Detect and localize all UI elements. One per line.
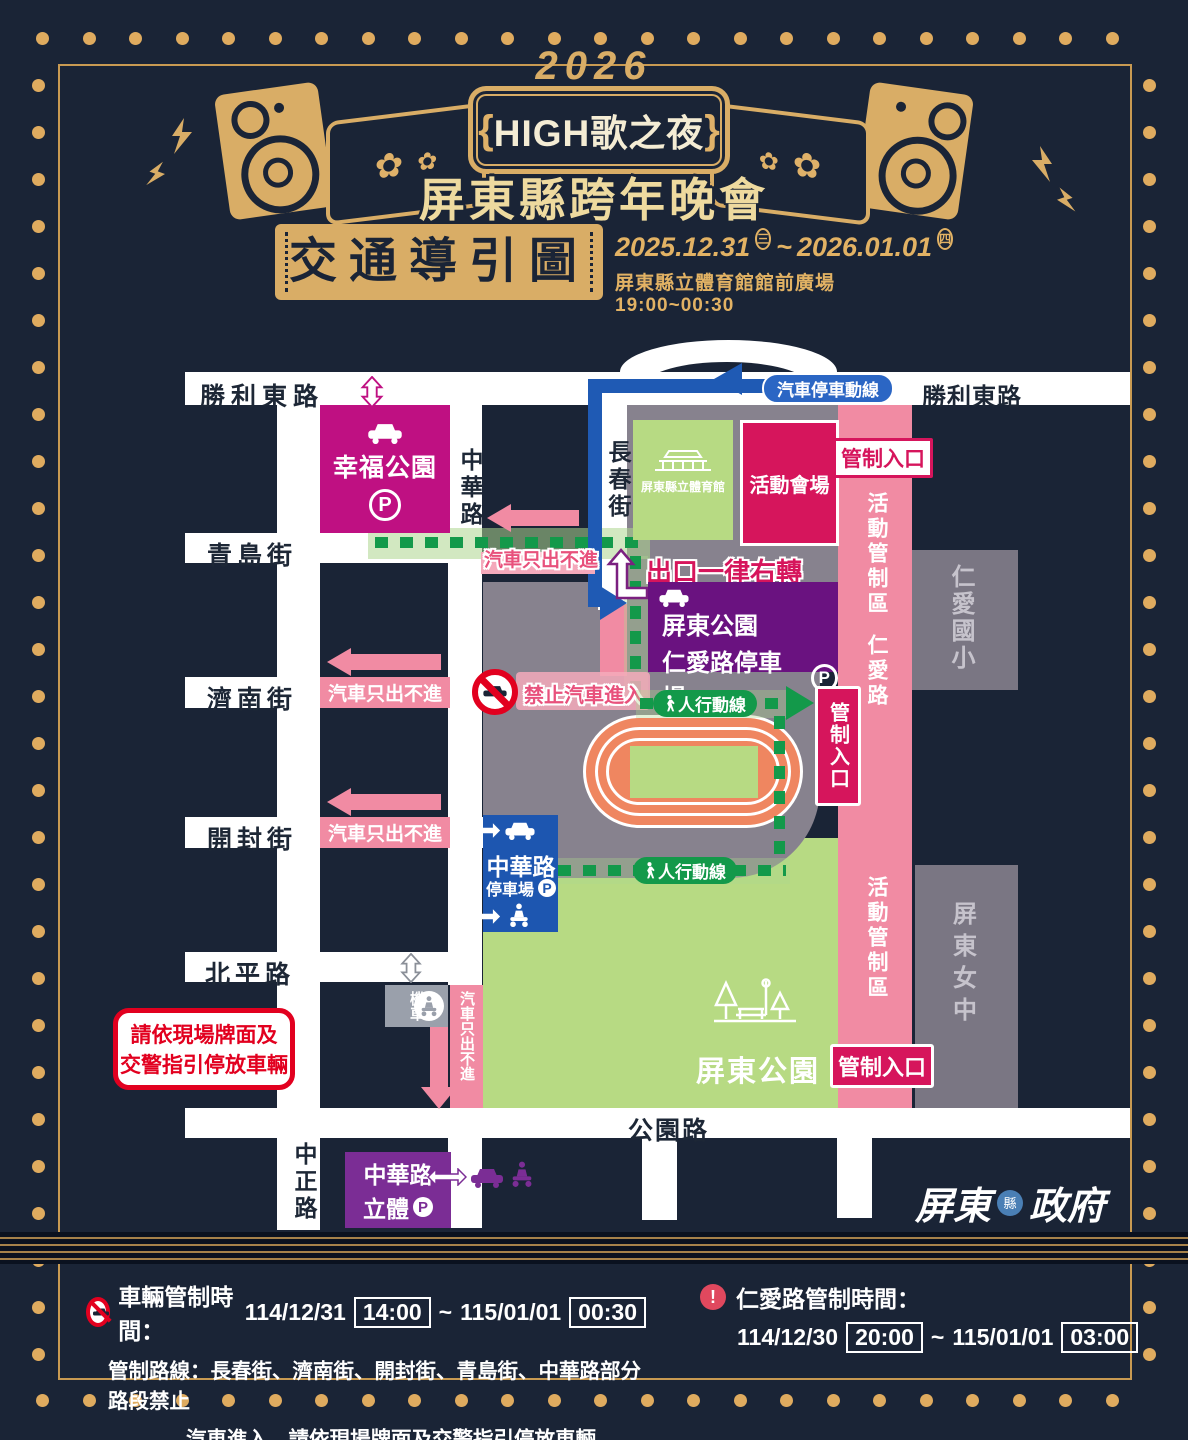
car-exit-band-jinan: 汽車只出不進 xyxy=(320,677,450,708)
stadium-building-label: 屏東縣立體育館 xyxy=(633,478,733,495)
moto-block: 機車 xyxy=(385,985,448,1027)
gold-dot xyxy=(1143,361,1156,374)
gold-dot xyxy=(36,32,49,45)
control-entrance-box-mid: 管制入口 xyxy=(815,686,861,806)
vehicle-control-time2: 00:30 xyxy=(569,1297,646,1328)
gold-dot xyxy=(32,314,45,327)
date-start: 2025.12.31 xyxy=(615,232,750,263)
gold-dot xyxy=(1143,925,1156,938)
vehicle-control-time1: 14:00 xyxy=(354,1297,431,1328)
road-label-gongyuan: 公園路 xyxy=(628,1111,709,1147)
control-zone-label-top: 活動管制區 xyxy=(861,492,891,617)
exit-up-arrow-icon xyxy=(606,548,648,604)
two-way-arrow-icon xyxy=(465,908,501,925)
gold-dot xyxy=(32,878,45,891)
gold-dot xyxy=(1143,1348,1156,1361)
gold-dot xyxy=(1143,267,1156,280)
no-entry-sign-icon xyxy=(86,1297,110,1327)
gold-dot xyxy=(920,32,933,45)
gold-dot xyxy=(32,408,45,421)
zhonghua-parking-line2: 停車場 xyxy=(486,876,534,900)
control-entrance-label: 管制入口 xyxy=(824,702,853,790)
car-exit-only-label: 汽車只出不進 xyxy=(484,545,598,572)
road-label-qingdao: 青島街 xyxy=(207,536,297,572)
pedestrian-arrow-east xyxy=(786,686,814,720)
pingtung-park-label: 屏東公園 xyxy=(688,1048,828,1090)
warning-line2: 交警指引停放車輛 xyxy=(120,1049,288,1079)
road-label-zhongzheng: 中正路 xyxy=(287,1142,321,1223)
car-icon xyxy=(504,820,536,840)
car-route-arrow-west xyxy=(714,363,742,395)
date-tilde: ~ xyxy=(776,232,792,263)
renai-elementary-label: 仁愛國小 xyxy=(952,564,978,672)
gold-dot xyxy=(687,1394,700,1407)
warning-line1: 請依現場牌面及 xyxy=(131,1019,278,1049)
gold-dot xyxy=(362,32,375,45)
stadium-track xyxy=(583,715,803,828)
gold-dot xyxy=(1143,1019,1156,1032)
road-label-zhonghua: 中華路 xyxy=(453,448,487,529)
road-label-shengli-right: 勝利東路 xyxy=(922,377,1022,412)
pedestrian-dashes xyxy=(774,716,785,866)
road-stub-south1 xyxy=(642,1138,677,1220)
gold-dot xyxy=(827,1394,840,1407)
footer-right: ! 仁愛路管制時間： 114/12/30 20:00 ~ 115/01/01 0… xyxy=(700,1280,1120,1353)
speaker-icon xyxy=(854,81,975,220)
footer-left: 車輛管制時間： 114/12/31 14:00 ~ 115/01/01 00:3… xyxy=(86,1278,646,1440)
gold-dot xyxy=(1143,596,1156,609)
event-venue-line: 屏東縣立體育館館前廣場 19:00~00:30 xyxy=(615,268,945,317)
zhonghua-tower-line1: 中華路 xyxy=(364,1156,433,1190)
gold-dot xyxy=(1143,1207,1156,1220)
day-circle: 三 xyxy=(755,228,771,250)
gold-dot xyxy=(1059,1394,1072,1407)
car-exit-band-kaifeng: 汽車只出不進 xyxy=(320,817,450,848)
no-car-entry-label: 禁止汽車進入 xyxy=(524,679,644,708)
gold-dot xyxy=(1143,314,1156,327)
pink-arrow-shaft xyxy=(430,1027,448,1087)
control-route-line2: 汽車進入，請依現場牌面及交警指引停放車輛 xyxy=(186,1422,646,1440)
gold-dot xyxy=(873,1394,886,1407)
renai-control-date1: 114/12/30 xyxy=(737,1324,838,1351)
car-exit-only-label: 汽車只出不進 xyxy=(456,991,477,1108)
gold-dot xyxy=(734,1394,747,1407)
event-year: 2026 xyxy=(494,44,694,89)
pink-arrow-west xyxy=(327,648,351,676)
gold-dot xyxy=(1143,643,1156,656)
pedestrian-flow-pill: 人行動線 xyxy=(633,857,737,884)
car-icon xyxy=(470,1166,504,1188)
vehicle-control-date1: 114/12/31 xyxy=(245,1299,346,1326)
gold-dot xyxy=(32,220,45,233)
road-label-changchun: 長春街 xyxy=(601,440,635,521)
warning-box: 請依現場牌面及 交警指引停放車輛 xyxy=(113,1008,295,1090)
pink-arrow-shaft xyxy=(351,654,441,670)
road-label-beiping: 北平路 xyxy=(205,955,295,991)
gold-dot xyxy=(1143,784,1156,797)
scooter-icon xyxy=(506,902,532,928)
road-zhongzheng xyxy=(277,372,320,1230)
gold-dot xyxy=(1059,32,1072,45)
gold-dot xyxy=(827,32,840,45)
gold-dot xyxy=(1143,1113,1156,1126)
gold-dot xyxy=(32,784,45,797)
alert-icon: ! xyxy=(700,1284,726,1310)
car-icon xyxy=(367,421,403,444)
gold-dot xyxy=(32,831,45,844)
gold-dot xyxy=(36,1394,49,1407)
renai-parking-line1: 屏東公園 xyxy=(662,606,838,641)
gold-dot xyxy=(1143,1301,1156,1314)
renai-control-date2: 115/01/01 xyxy=(952,1324,1053,1351)
gold-dot xyxy=(1106,32,1119,45)
gold-dot xyxy=(1143,173,1156,186)
gold-dot xyxy=(1143,972,1156,985)
stadium-building-block: 屏東縣立體育館 xyxy=(633,420,733,540)
gold-dot xyxy=(1143,549,1156,562)
control-entrance-box-bottom: 管制入口 xyxy=(830,1044,934,1088)
sign-brace: { xyxy=(478,108,494,153)
renai-elementary-block: 仁愛國小 xyxy=(912,550,1018,690)
poster: ✿ ✿ ✿ ✿ 2026 { HIGH歌之夜 } 屏東縣跨年晚會 交通導引圖 2… xyxy=(0,0,1188,1440)
day-circle: 四 xyxy=(937,228,953,250)
park-icon xyxy=(710,975,800,1039)
gold-dot xyxy=(32,1066,45,1079)
stadium-field xyxy=(630,746,758,798)
gold-dot xyxy=(1106,1394,1119,1407)
gold-dot xyxy=(32,549,45,562)
pink-arrow-shaft xyxy=(351,794,441,810)
gold-dot xyxy=(32,737,45,750)
renai-control-title: 仁愛路管制時間： xyxy=(736,1280,920,1314)
date-end: 2026.01.01 xyxy=(797,232,932,263)
logo-text: 屏東 xyxy=(915,1175,991,1230)
car-flow-label: 汽車停車動線 xyxy=(777,376,879,401)
lightning-icon xyxy=(168,118,194,154)
gold-dot xyxy=(32,596,45,609)
pedestrian-flow-label: 人行動線 xyxy=(658,858,726,883)
gold-dot xyxy=(1143,1160,1156,1173)
speaker-icon xyxy=(214,81,335,220)
road-label-jinan: 濟南街 xyxy=(207,680,297,716)
pink-arrow-west xyxy=(327,788,351,816)
two-way-arrow-icon xyxy=(400,953,422,983)
tilde: ~ xyxy=(439,1299,452,1326)
gold-dot xyxy=(32,925,45,938)
event-venue-label: 活動會場 xyxy=(750,469,830,498)
gold-dot xyxy=(269,32,282,45)
scooter-circle-icon xyxy=(414,991,444,1021)
gold-dot xyxy=(129,32,142,45)
gold-dot xyxy=(1143,502,1156,515)
gold-dot xyxy=(1143,220,1156,233)
gold-dot xyxy=(32,972,45,985)
gold-dot xyxy=(1143,79,1156,92)
gold-dot xyxy=(315,32,328,45)
gold-dot xyxy=(920,1394,933,1407)
control-entrance-label: 管制入口 xyxy=(841,443,925,473)
pedestrian-flow-label: 人行動線 xyxy=(678,691,746,716)
gold-dot xyxy=(1143,831,1156,844)
gold-dot xyxy=(1013,1394,1026,1407)
zhonghua-tower-line2: 立體 xyxy=(363,1190,409,1224)
logo-text: 政府 xyxy=(1029,1175,1105,1230)
car-icon xyxy=(658,587,690,607)
two-way-arrow-icon xyxy=(427,1168,467,1186)
gold-dot xyxy=(32,1019,45,1032)
vehicle-control-title: 車輛管制時間： xyxy=(118,1278,237,1346)
walker-icon xyxy=(644,861,655,880)
pink-arrow-south xyxy=(421,1087,457,1109)
gold-dot xyxy=(455,32,468,45)
county-gov-logo: 屏東 縣 政府 xyxy=(915,1175,1105,1230)
walker-icon xyxy=(664,694,675,713)
gold-dot xyxy=(408,32,421,45)
parking-icon: P xyxy=(369,489,401,521)
gold-dot xyxy=(1013,32,1026,45)
pink-arrow-shaft xyxy=(511,510,579,526)
gold-dot xyxy=(873,32,886,45)
xingfu-park-label: 幸福公園 xyxy=(320,448,450,484)
gold-dot xyxy=(1143,126,1156,139)
road-label-kaifeng: 開封街 xyxy=(207,820,297,856)
road-stub-south2 xyxy=(837,1138,872,1218)
event-sign: { HIGH歌之夜 } xyxy=(468,86,730,174)
gold-dot xyxy=(966,1394,979,1407)
gold-dot xyxy=(32,173,45,186)
gold-dot xyxy=(83,32,96,45)
county-seal-icon: 縣 xyxy=(997,1190,1023,1216)
gold-dot xyxy=(1143,878,1156,891)
car-flow-pill: 汽車停車動線 xyxy=(762,373,894,404)
gold-dot xyxy=(176,32,189,45)
event-venue-block: 活動會場 xyxy=(740,420,839,546)
parking-icon: P xyxy=(538,879,556,897)
stadium-building-icon xyxy=(652,446,714,472)
gold-dot xyxy=(222,32,235,45)
gold-dot xyxy=(780,32,793,45)
car-exit-only-label: 汽車只出不進 xyxy=(328,679,442,706)
gold-dot xyxy=(32,643,45,656)
gold-dot xyxy=(32,267,45,280)
lightning-icon xyxy=(1030,146,1056,182)
event-subtitle: 屏東縣跨年晚會 xyxy=(329,164,859,230)
gold-dot xyxy=(32,502,45,515)
gold-dot xyxy=(32,79,45,92)
gold-dot xyxy=(1143,1066,1156,1079)
gold-dot xyxy=(32,1301,45,1314)
control-entrance-label: 管制入口 xyxy=(838,1050,926,1082)
two-way-arrow-icon xyxy=(465,822,501,839)
vehicle-control-date2: 115/01/01 xyxy=(460,1299,561,1326)
parking-icon: P xyxy=(413,1197,433,1217)
renai-road-label: 仁愛路 xyxy=(861,634,891,709)
gold-dot xyxy=(32,455,45,468)
pingtung-girls-label: 屏東女中 xyxy=(954,901,980,1029)
sign-brace: } xyxy=(704,108,720,153)
car-exit-only-label: 汽車只出不進 xyxy=(328,819,442,846)
gold-dot xyxy=(966,32,979,45)
gold-dot xyxy=(32,1113,45,1126)
two-way-arrow-icon xyxy=(360,376,384,408)
xingfu-park-block: 幸福公園 P xyxy=(320,405,450,533)
pedestrian-flow-pill: 人行動線 xyxy=(653,690,757,717)
pink-arrow-west xyxy=(487,504,511,532)
gold-dot xyxy=(32,690,45,703)
gold-dot xyxy=(32,126,45,139)
renai-control-time1: 20:00 xyxy=(846,1322,923,1353)
control-zone-label-bottom: 活動管制區 xyxy=(861,876,891,1001)
gold-dot xyxy=(780,1394,793,1407)
event-dates: 2025.12.31 三 ~ 2026.01.01 四 xyxy=(615,232,945,263)
gold-dot xyxy=(1143,408,1156,421)
gold-dot xyxy=(32,1348,45,1361)
gold-dot xyxy=(32,1160,45,1173)
scooter-icon xyxy=(508,1160,536,1188)
renai-control-time2: 03:00 xyxy=(1061,1322,1138,1353)
gold-dot xyxy=(1143,455,1156,468)
no-entry-sign-icon xyxy=(472,669,518,715)
control-entrance-box-top: 管制入口 xyxy=(833,438,933,478)
stage-stripes xyxy=(0,1232,1188,1264)
event-title: HIGH歌之夜 xyxy=(494,103,705,157)
tilde: ~ xyxy=(931,1324,944,1351)
gold-dot xyxy=(1143,690,1156,703)
map-title-plate: 交通導引圖 xyxy=(275,224,603,300)
gold-dot xyxy=(734,32,747,45)
map-title: 交通導引圖 xyxy=(275,224,603,300)
road-label-shengli-left: 勝利東路 xyxy=(200,377,324,413)
control-route-line: 管制路線：長春街、濟南街、開封街、青島街、中華路部分路段禁止 xyxy=(108,1354,646,1414)
zhonghua-tower-block: 中華路 立體 P xyxy=(345,1152,451,1228)
gold-dot xyxy=(1143,737,1156,750)
renai-parking-block: 屏東公園 仁愛路停車場 P xyxy=(648,582,838,672)
gold-dot xyxy=(32,1207,45,1220)
gold-dot xyxy=(32,361,45,374)
